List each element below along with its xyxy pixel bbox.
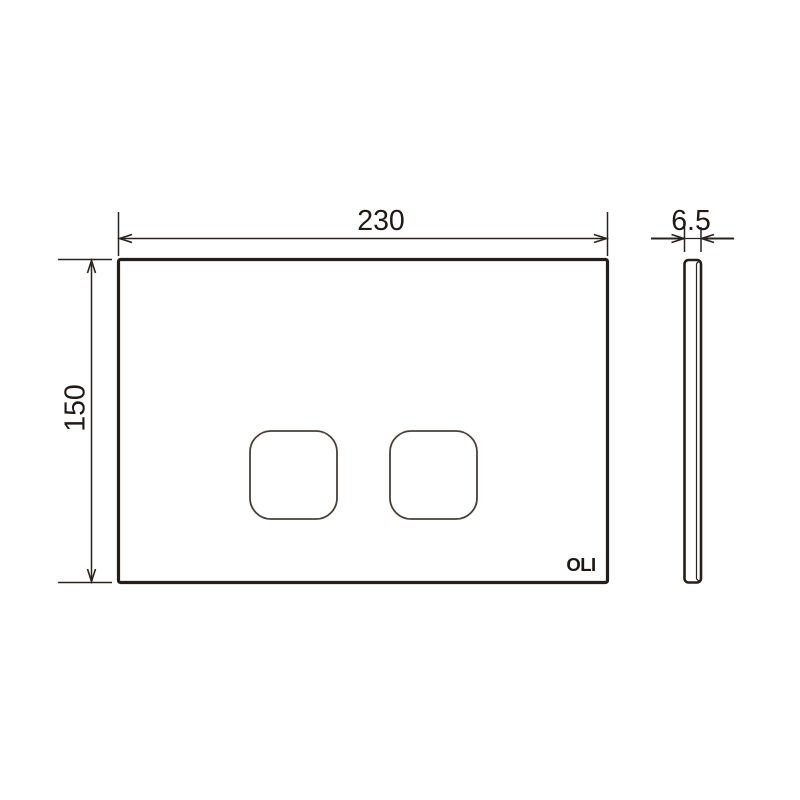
width-dimension-label: 230 [357, 205, 405, 237]
height-dimension-label: 150 [60, 384, 92, 432]
flush-button-left [250, 431, 337, 519]
flush-button-right [390, 431, 477, 519]
technical-drawing-canvas: OLI 230 150 [0, 0, 800, 800]
width-dimension: 230 [119, 205, 608, 256]
thickness-dimension-label: 6.5 [671, 205, 711, 237]
flush-plate-technical-drawing: OLI 230 150 [0, 0, 800, 800]
brand-logo: OLI [566, 554, 595, 575]
side-profile-outline [685, 260, 702, 583]
height-dimension: 150 [58, 260, 112, 583]
thickness-dimension: 6.5 [651, 205, 734, 252]
plate-outline [119, 260, 608, 583]
side-view [685, 260, 702, 583]
front-view: OLI [119, 260, 608, 583]
